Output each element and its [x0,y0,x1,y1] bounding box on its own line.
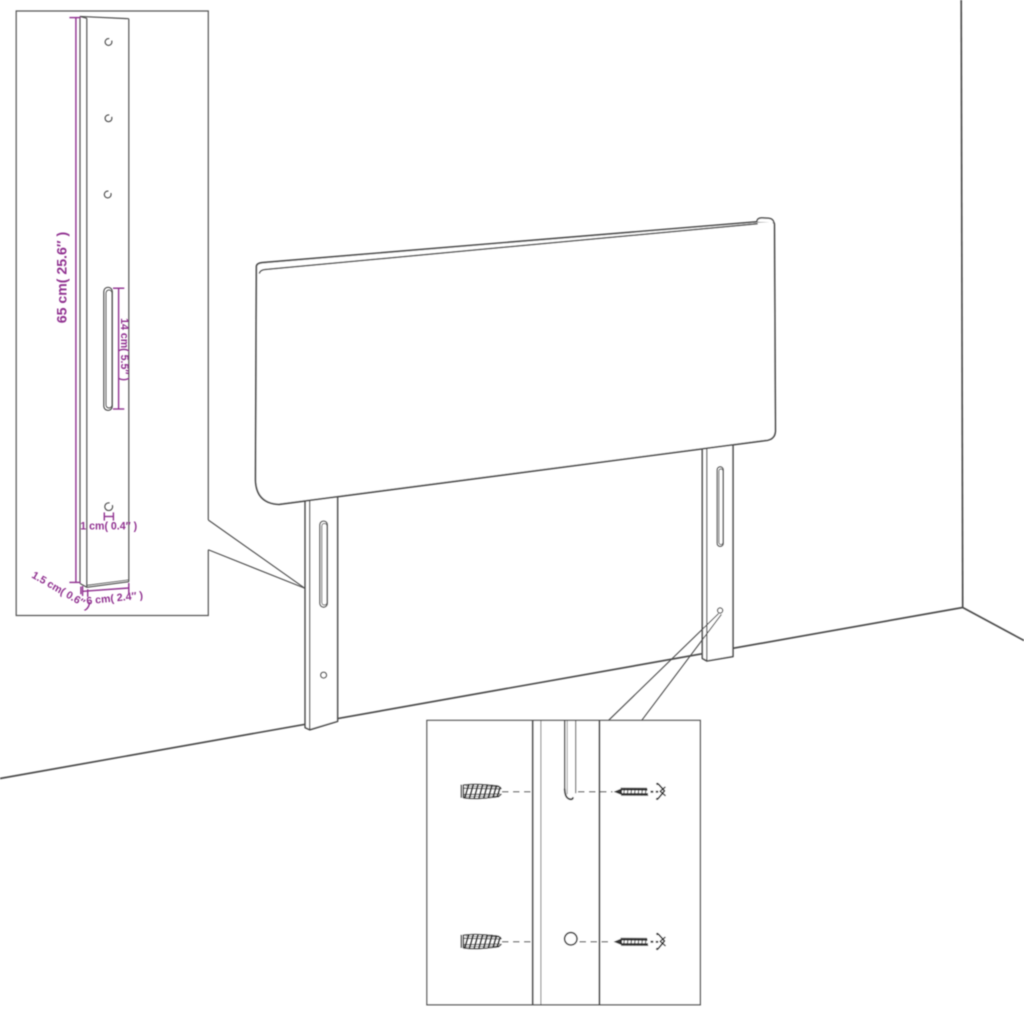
svg-text:1 cm( 0.4″ ): 1 cm( 0.4″ ) [80,520,137,532]
svg-text:65 cm( 25.6″ ): 65 cm( 25.6″ ) [54,232,70,323]
svg-text:14 cm( 5.5″ ): 14 cm( 5.5″ ) [118,318,130,381]
